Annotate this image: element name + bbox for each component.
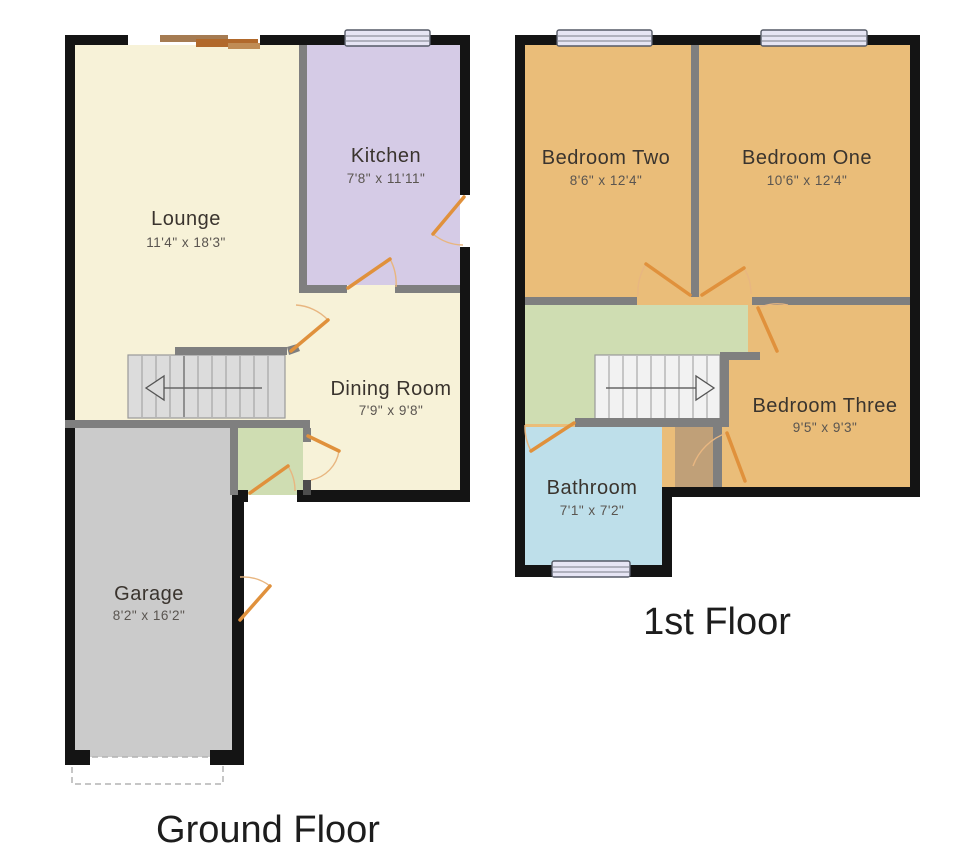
- stairs-ground: [128, 355, 285, 418]
- bedroom-two-window: [557, 30, 652, 46]
- room-dims-bathroom: 7'1" x 7'2": [560, 503, 625, 518]
- landing-floor-left-arm: [525, 305, 595, 424]
- room-label-bedroom-one: Bedroom One: [742, 147, 872, 169]
- stairs-first: [595, 355, 720, 419]
- floorplan-drawing: Lounge 11'4" x 18'3" Kitchen 7'8" x 11'1…: [0, 0, 980, 861]
- room-dims-bedroom-two: 8'6" x 12'4": [570, 173, 643, 188]
- room-label-lounge: Lounge: [151, 208, 221, 230]
- ground-floor-plan: Lounge 11'4" x 18'3" Kitchen 7'8" x 11'1…: [65, 30, 470, 851]
- room-dims-bedroom-three: 9'5" x 9'3": [793, 420, 858, 435]
- room-dims-bedroom-one: 10'6" x 12'4": [767, 173, 848, 188]
- room-label-bedroom-three: Bedroom Three: [752, 395, 897, 417]
- first-floor-title: 1st Floor: [643, 601, 791, 643]
- room-dims-lounge: 11'4" x 18'3": [146, 235, 226, 250]
- room-label-bathroom: Bathroom: [547, 477, 638, 499]
- room-dims-dining: 7'9" x 9'8": [359, 403, 424, 418]
- room-label-kitchen: Kitchen: [351, 145, 421, 167]
- garage-door-outline: [72, 757, 223, 784]
- hallway-floor: [238, 428, 303, 495]
- garage-side-door: [240, 577, 270, 620]
- first-floor-plan: Bedroom Two 8'6" x 12'4" Bedroom One 10'…: [515, 30, 920, 643]
- cupboard-floor: [675, 427, 713, 487]
- front-bay-window-bar: [228, 43, 260, 49]
- room-label-dining: Dining Room: [330, 378, 451, 400]
- floorplan-canvas: Lounge 11'4" x 18'3" Kitchen 7'8" x 11'1…: [0, 0, 980, 861]
- room-dims-garage: 8'2" x 16'2": [113, 608, 186, 623]
- bedroom-one-window: [761, 30, 867, 46]
- room-label-garage: Garage: [114, 583, 184, 605]
- kitchen-window: [345, 30, 430, 46]
- bathroom-window: [552, 561, 630, 577]
- room-label-bedroom-two: Bedroom Two: [542, 147, 671, 169]
- room-dims-kitchen: 7'8" x 11'11": [347, 171, 426, 186]
- ground-floor-title: Ground Floor: [156, 809, 380, 851]
